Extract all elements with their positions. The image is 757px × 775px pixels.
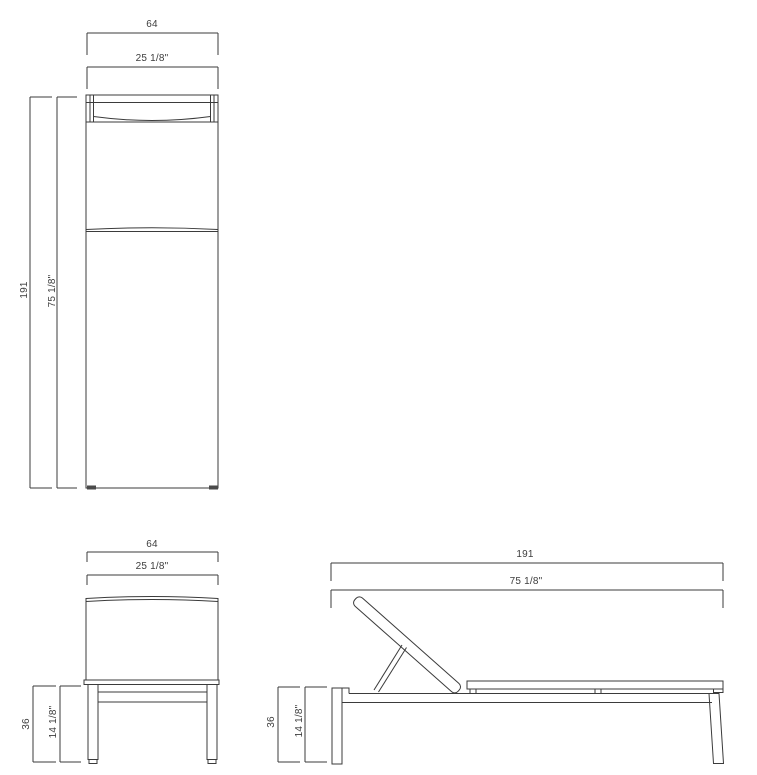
front-height-cm-label: 36 — [22, 718, 32, 730]
plan-view-linework — [86, 95, 218, 490]
front-foot-right — [208, 760, 216, 764]
plan-view-dimension-lines — [30, 33, 218, 488]
front-foot-left — [89, 760, 97, 764]
front-view-linework — [84, 597, 219, 764]
side-leg-right — [709, 694, 724, 764]
plan-width-in-label: 25 1/8" — [136, 54, 169, 64]
backrest-slat — [352, 595, 463, 695]
side-length-cm-label: 191 — [516, 550, 533, 560]
side-length-in-label: 75 1/8" — [510, 577, 543, 587]
plan-width-cm-label: 64 — [146, 20, 158, 30]
plan-foot-right — [209, 486, 218, 490]
front-view-dimension-lines — [33, 552, 218, 762]
side-height-in-label: 14 1/8" — [295, 705, 305, 738]
side-view-linework — [332, 595, 724, 764]
drawing-linework — [0, 0, 757, 775]
plan-length-in-label: 75 1/8" — [48, 275, 58, 308]
plan-foot-left — [87, 486, 96, 490]
front-height-in-label: 14 1/8" — [49, 706, 59, 739]
front-width-cm-label: 64 — [146, 540, 158, 550]
side-view-dimension-lines — [278, 563, 723, 762]
side-leg-left — [332, 688, 342, 764]
seat-slat — [467, 681, 723, 689]
front-width-in-label: 25 1/8" — [136, 562, 169, 572]
technical-drawing-canvas: 64 25 1/8" 191 75 1/8" 64 25 1/8" 36 14 … — [0, 0, 757, 775]
side-height-cm-label: 36 — [267, 716, 277, 728]
plan-length-cm-label: 191 — [20, 281, 30, 298]
